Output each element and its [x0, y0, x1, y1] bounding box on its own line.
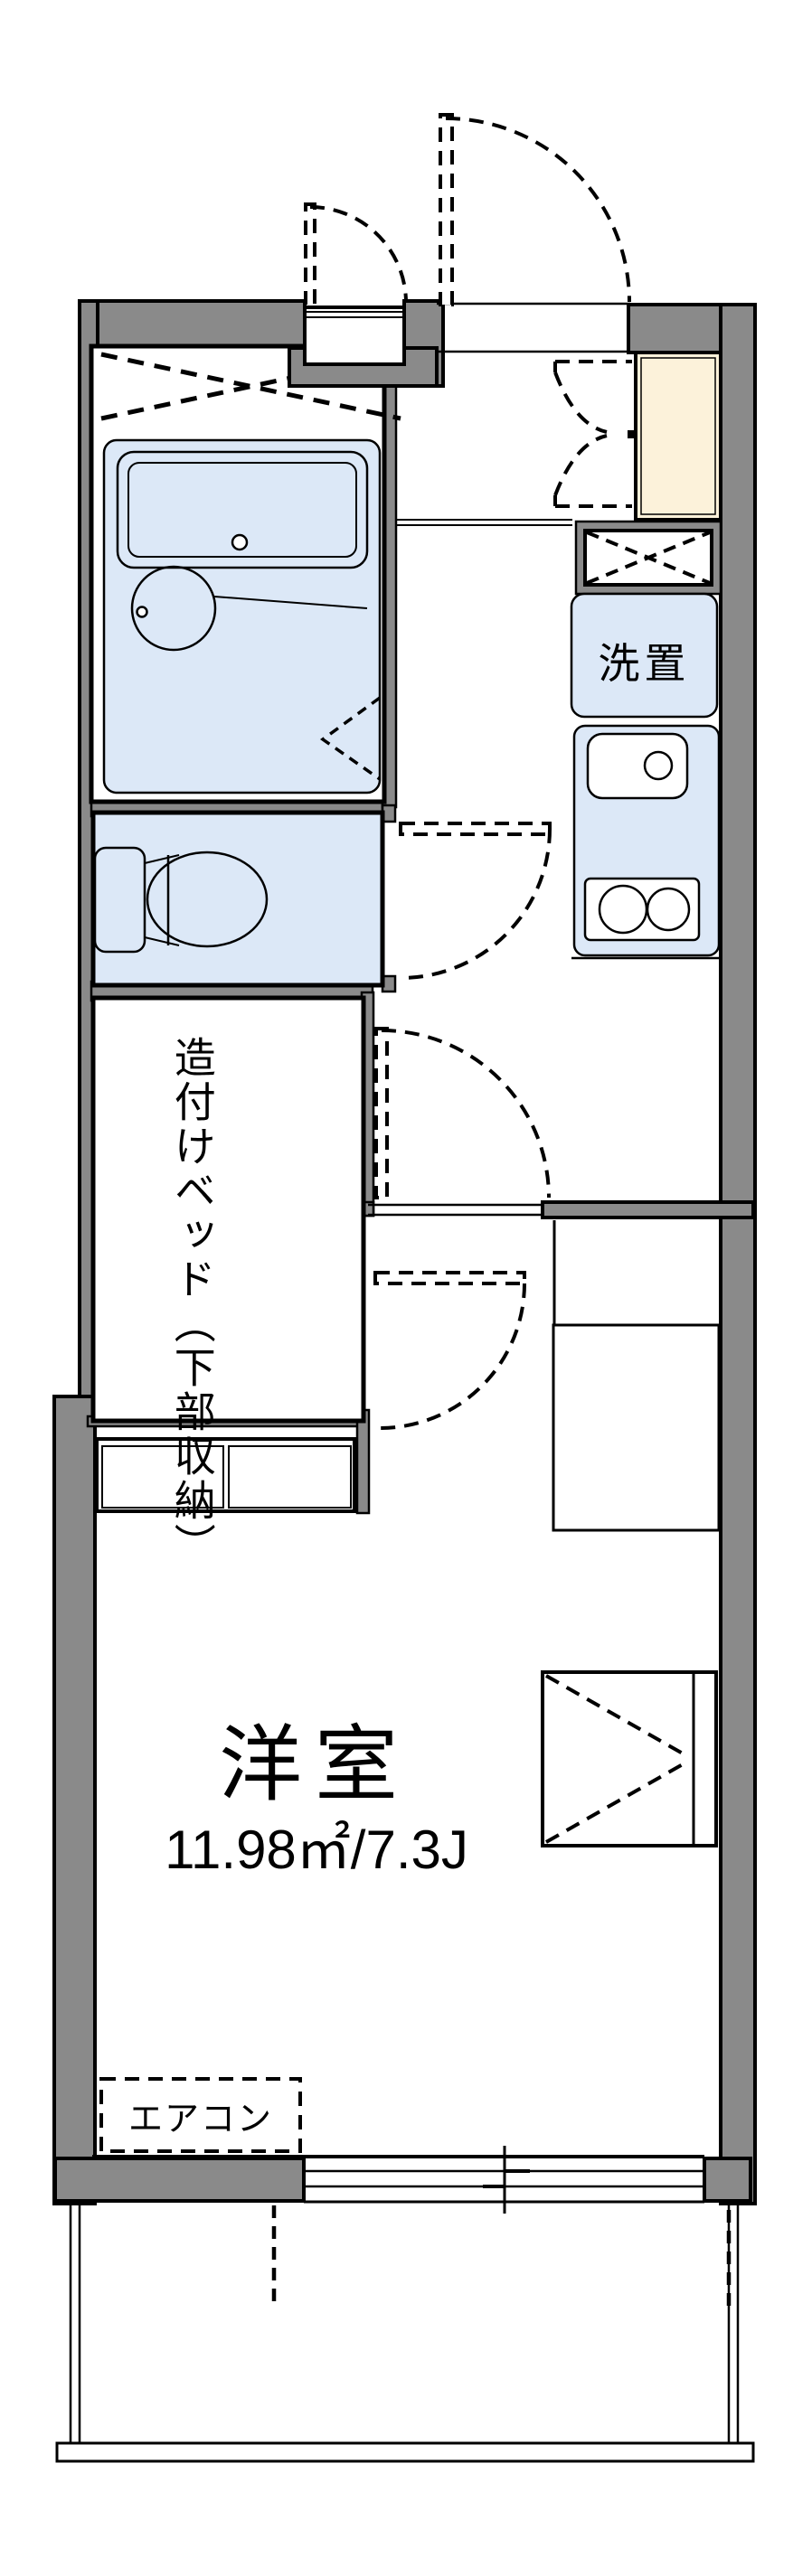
entry-door-arc	[446, 118, 629, 302]
room-door-leaf	[375, 1273, 524, 1283]
wall-right	[721, 305, 755, 2204]
shoe-cabinet	[636, 353, 721, 520]
bathroom	[91, 307, 437, 802]
window-swing-leaf	[306, 204, 315, 305]
entry-door-leaf	[440, 115, 452, 305]
bed-area-outline	[93, 998, 364, 1421]
shoe-door-arc-top	[555, 372, 607, 432]
under-bed-drawers	[97, 1439, 354, 1511]
built-in-bed-label: 造付けベッド（下部収納）	[165, 1036, 220, 1361]
bed-room	[93, 998, 364, 1511]
room-door-arc	[380, 1283, 524, 1428]
burner-left-icon	[600, 886, 647, 933]
nook-box	[553, 1325, 719, 1530]
balcony-rail	[57, 2443, 753, 2461]
built-in-bed-label-line2: （下部収納）	[169, 1302, 216, 1567]
shoe-door-arc-bottom	[555, 436, 607, 495]
aircon-label: エアコン	[101, 2079, 300, 2151]
window-swing-arc	[310, 207, 406, 303]
built-in-bed-label-line1: 造付けベッド	[169, 1036, 216, 1302]
wall-bottom-left	[55, 2158, 304, 2201]
counter-nook	[553, 1220, 719, 1530]
closet	[543, 1672, 716, 1846]
floorplan-canvas: 洗置 造付けベッド（下部収納） 洋室 11.98㎡/7.3J エアコン	[0, 0, 812, 2576]
wall-hall-bottom	[543, 1202, 753, 1217]
hall-door-arc	[382, 1030, 549, 1198]
shoe-door-knob	[628, 430, 636, 438]
faucet-icon	[645, 752, 672, 779]
toilet-room	[93, 813, 382, 985]
wall-window-post	[357, 1410, 369, 1513]
basin-faucet-icon	[137, 607, 147, 617]
laundry-space-label: 洗置	[571, 631, 717, 691]
burner-right-icon	[647, 888, 689, 930]
toilet-door-arc	[401, 829, 550, 978]
room-name-label: 洋室	[152, 1697, 477, 1818]
toilet-door-leaf	[401, 823, 550, 834]
floorplan-drawing	[0, 0, 812, 2576]
toilet-room-outline	[93, 813, 382, 985]
doors	[368, 823, 550, 1428]
wall-bottom-right	[704, 2158, 751, 2201]
hall-door-leaf	[376, 1029, 387, 1198]
room-area-label: 11.98㎡/7.3J	[118, 1806, 515, 1885]
bath-window-niche	[305, 307, 404, 364]
bathtub-drain-icon	[232, 535, 247, 550]
wall-left-lower	[54, 1396, 95, 2204]
